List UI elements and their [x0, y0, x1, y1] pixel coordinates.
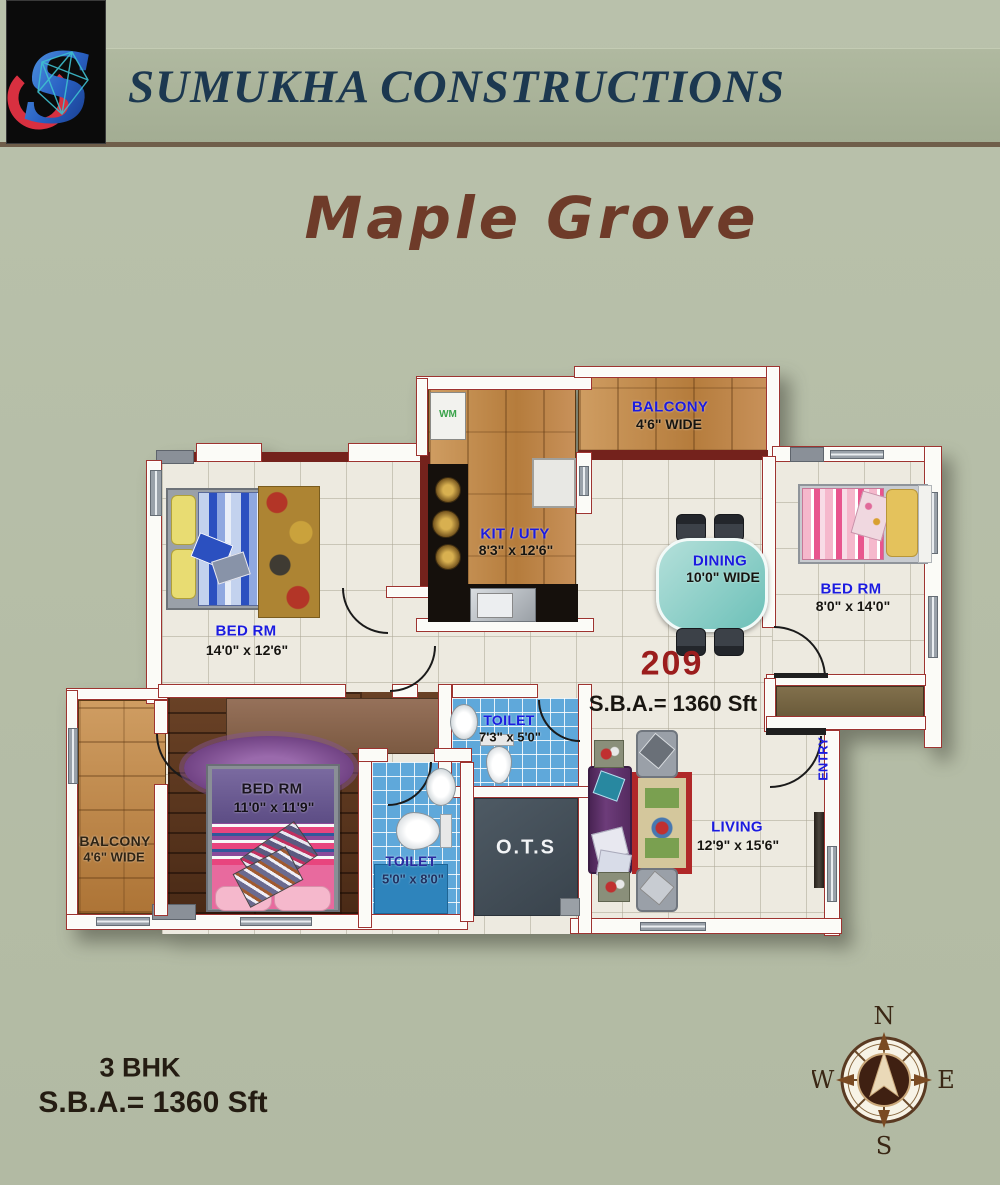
door-leaf — [774, 673, 828, 678]
wall — [386, 586, 432, 598]
unit-number: 209 — [641, 645, 704, 684]
wall — [158, 684, 346, 698]
pillow — [886, 489, 918, 557]
room-label-balcony-left: BALCONY — [79, 833, 150, 849]
room-label-ots: O.T.S — [496, 837, 556, 860]
wash-basin — [426, 768, 456, 806]
headboard — [918, 485, 932, 563]
compass-north-label: N — [874, 1004, 895, 1030]
room-label-bed2: BED RM — [821, 581, 882, 598]
window — [579, 466, 589, 496]
wall — [416, 378, 428, 456]
room-dims-dining: 10'0" WIDE — [686, 569, 760, 585]
window — [827, 846, 837, 902]
wall — [460, 762, 474, 922]
wall — [452, 684, 538, 698]
floor-entry-passage — [776, 686, 924, 718]
compass-rose-icon: N E S W — [812, 1004, 956, 1156]
wall — [434, 748, 472, 762]
washing-machine-label: WM — [431, 393, 465, 437]
wall — [358, 748, 372, 928]
wall — [66, 688, 168, 700]
window — [928, 596, 938, 658]
compass-west-label: W — [812, 1066, 835, 1094]
side-table — [598, 872, 630, 902]
room-dims-toilet-left: 5'0" x 8'0" — [382, 872, 444, 887]
room-dims-bed1: 14'0" x 12'6" — [206, 642, 288, 658]
sink-basin — [477, 593, 513, 618]
kitchen-sink — [470, 588, 536, 622]
window — [150, 470, 162, 516]
stove-burner — [435, 544, 461, 570]
room-label-kitchen: KIT / UTY — [480, 526, 549, 543]
room-dims-toilet-top: 7'3" x 5'0" — [479, 730, 541, 745]
wall — [416, 376, 592, 390]
room-dims-bed3: 11'0" x 11'9" — [234, 799, 315, 815]
footer-sba-text: S.B.A.= 1360 Sft — [38, 1086, 267, 1120]
room-label-toilet-left: TOILET — [385, 853, 436, 869]
column-block — [790, 447, 824, 462]
window — [830, 450, 884, 459]
side-table — [594, 740, 624, 768]
room-label-entry: ENTRY — [816, 737, 831, 781]
window — [96, 917, 150, 926]
window — [68, 728, 78, 784]
washing-machine: WM — [430, 392, 466, 440]
pillow — [171, 495, 196, 545]
wall — [66, 690, 78, 928]
room-label-bed1: BED RM — [216, 623, 277, 640]
compass-east-label: E — [937, 1066, 955, 1094]
rug — [258, 486, 320, 618]
stove-burner — [432, 510, 460, 538]
room-dims-balcony-top: 4'6" WIDE — [636, 416, 702, 432]
room-label-dining: DINING — [693, 553, 747, 570]
toilet-tank — [440, 814, 452, 848]
wall — [766, 366, 780, 458]
balcony-sill — [578, 450, 768, 460]
window-box — [348, 443, 426, 462]
window — [240, 917, 312, 926]
rug — [632, 772, 692, 874]
unit-sba: S.B.A.= 1360 Sft — [589, 691, 757, 717]
dining-chair — [714, 628, 744, 656]
wall — [358, 748, 388, 762]
wall — [154, 700, 168, 734]
room-label-toilet-top: TOILET — [483, 712, 534, 728]
room-label-balcony-top: BALCONY — [632, 399, 708, 416]
compass-graphic: N E S W — [812, 1004, 955, 1156]
room-dims-balcony-left: 4'6" WIDE — [83, 850, 144, 865]
wall — [154, 784, 168, 916]
ots-step — [560, 898, 580, 916]
room-dims-living: 12'9" x 15'6" — [697, 837, 779, 853]
window-box — [196, 443, 262, 462]
floor-balcony-left — [78, 700, 166, 914]
window — [640, 922, 706, 931]
entry-door-leaf — [766, 728, 826, 735]
kitchen-cabinet — [532, 458, 576, 508]
wall — [574, 366, 778, 378]
wall — [570, 918, 842, 934]
room-dims-bed2: 8'0" x 14'0" — [816, 598, 890, 614]
config-text: 3 BHK — [99, 1053, 180, 1084]
room-label-bed3: BED RM — [242, 781, 303, 798]
stove-burner — [435, 477, 461, 503]
room-label-living: LIVING — [711, 819, 763, 836]
wash-basin — [450, 704, 478, 740]
tv-unit — [814, 812, 824, 888]
room-dims-kitchen: 8'3" x 12'6" — [479, 542, 553, 558]
compass-south-label: S — [876, 1132, 892, 1156]
